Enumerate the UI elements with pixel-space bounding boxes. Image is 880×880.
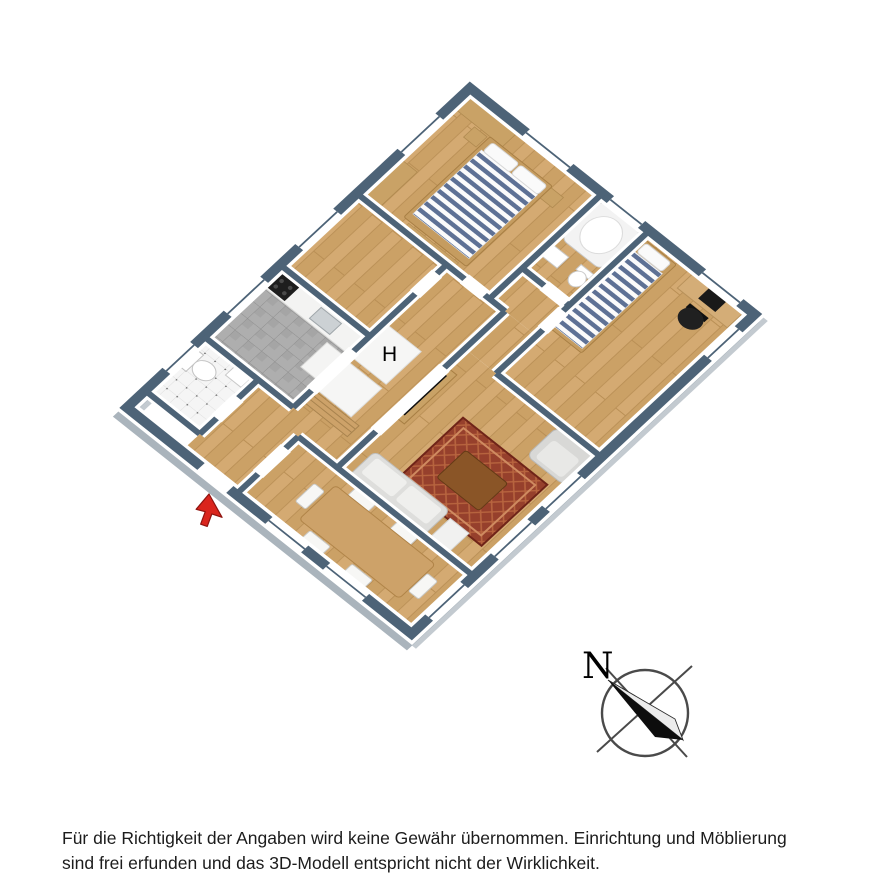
floorplan-page: H N Für die Richtigkeit der Angaben wird… xyxy=(0,0,880,880)
disclaimer-line-2: sind frei erfunden und das 3D-Modell ent… xyxy=(62,851,832,876)
disclaimer-text: Für die Richtigkeit der Angaben wird kei… xyxy=(62,826,832,877)
compass-north-label: N xyxy=(582,646,614,687)
hall-label: H xyxy=(382,343,397,366)
floor-plan xyxy=(120,88,761,646)
floorplan-rendering: H N xyxy=(0,0,880,880)
compass-rose: N xyxy=(582,646,692,757)
disclaimer-line-1: Für die Richtigkeit der Angaben wird kei… xyxy=(62,826,832,851)
